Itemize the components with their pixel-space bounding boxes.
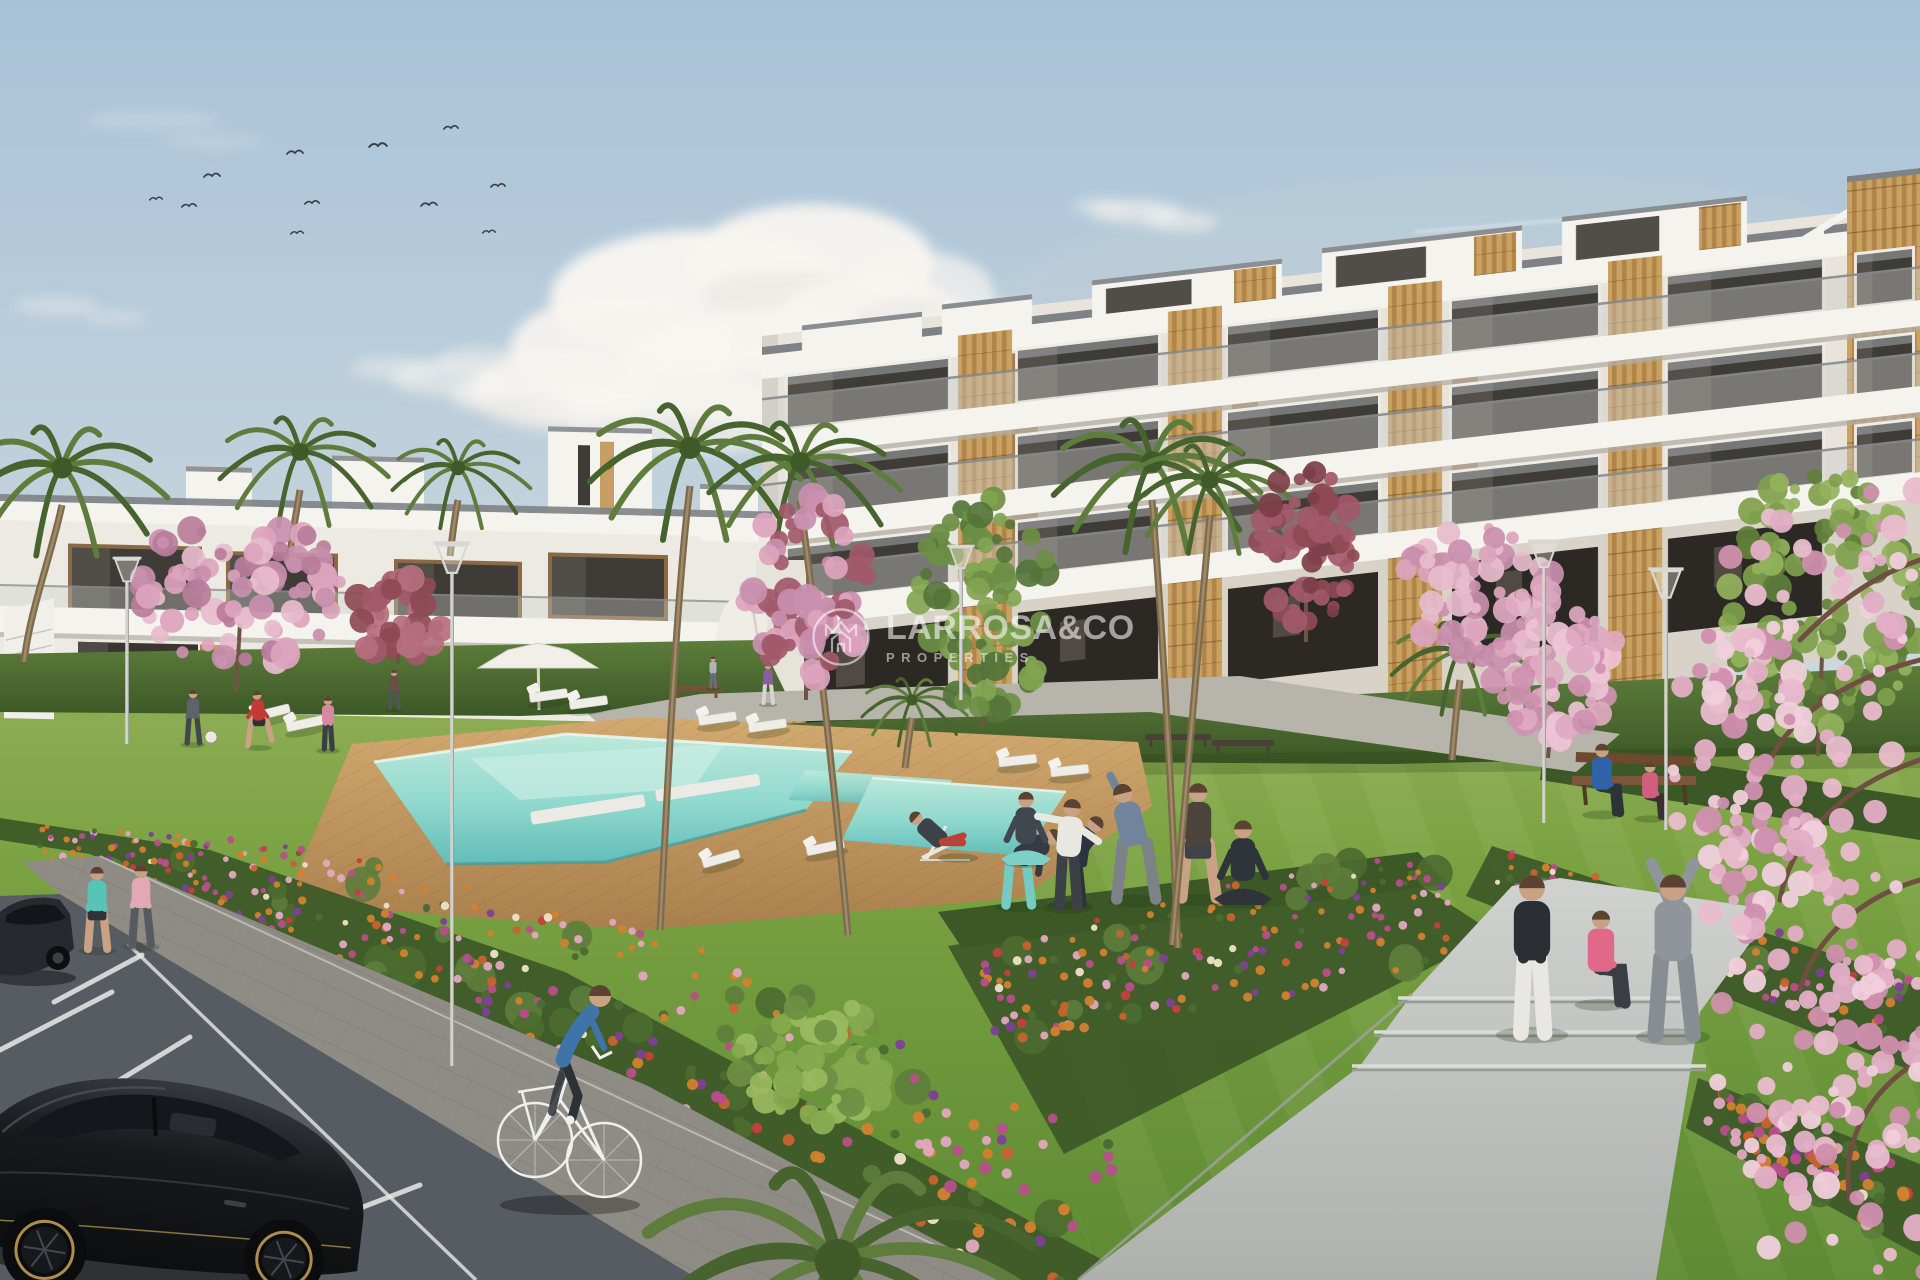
bench (1145, 734, 1211, 740)
soccer-ball (205, 731, 217, 743)
parked-car (0, 898, 76, 986)
bench (1212, 740, 1274, 746)
scene-render (0, 0, 1920, 1280)
render-image: LARROSA&CO PROPERTIES (0, 0, 1920, 1280)
